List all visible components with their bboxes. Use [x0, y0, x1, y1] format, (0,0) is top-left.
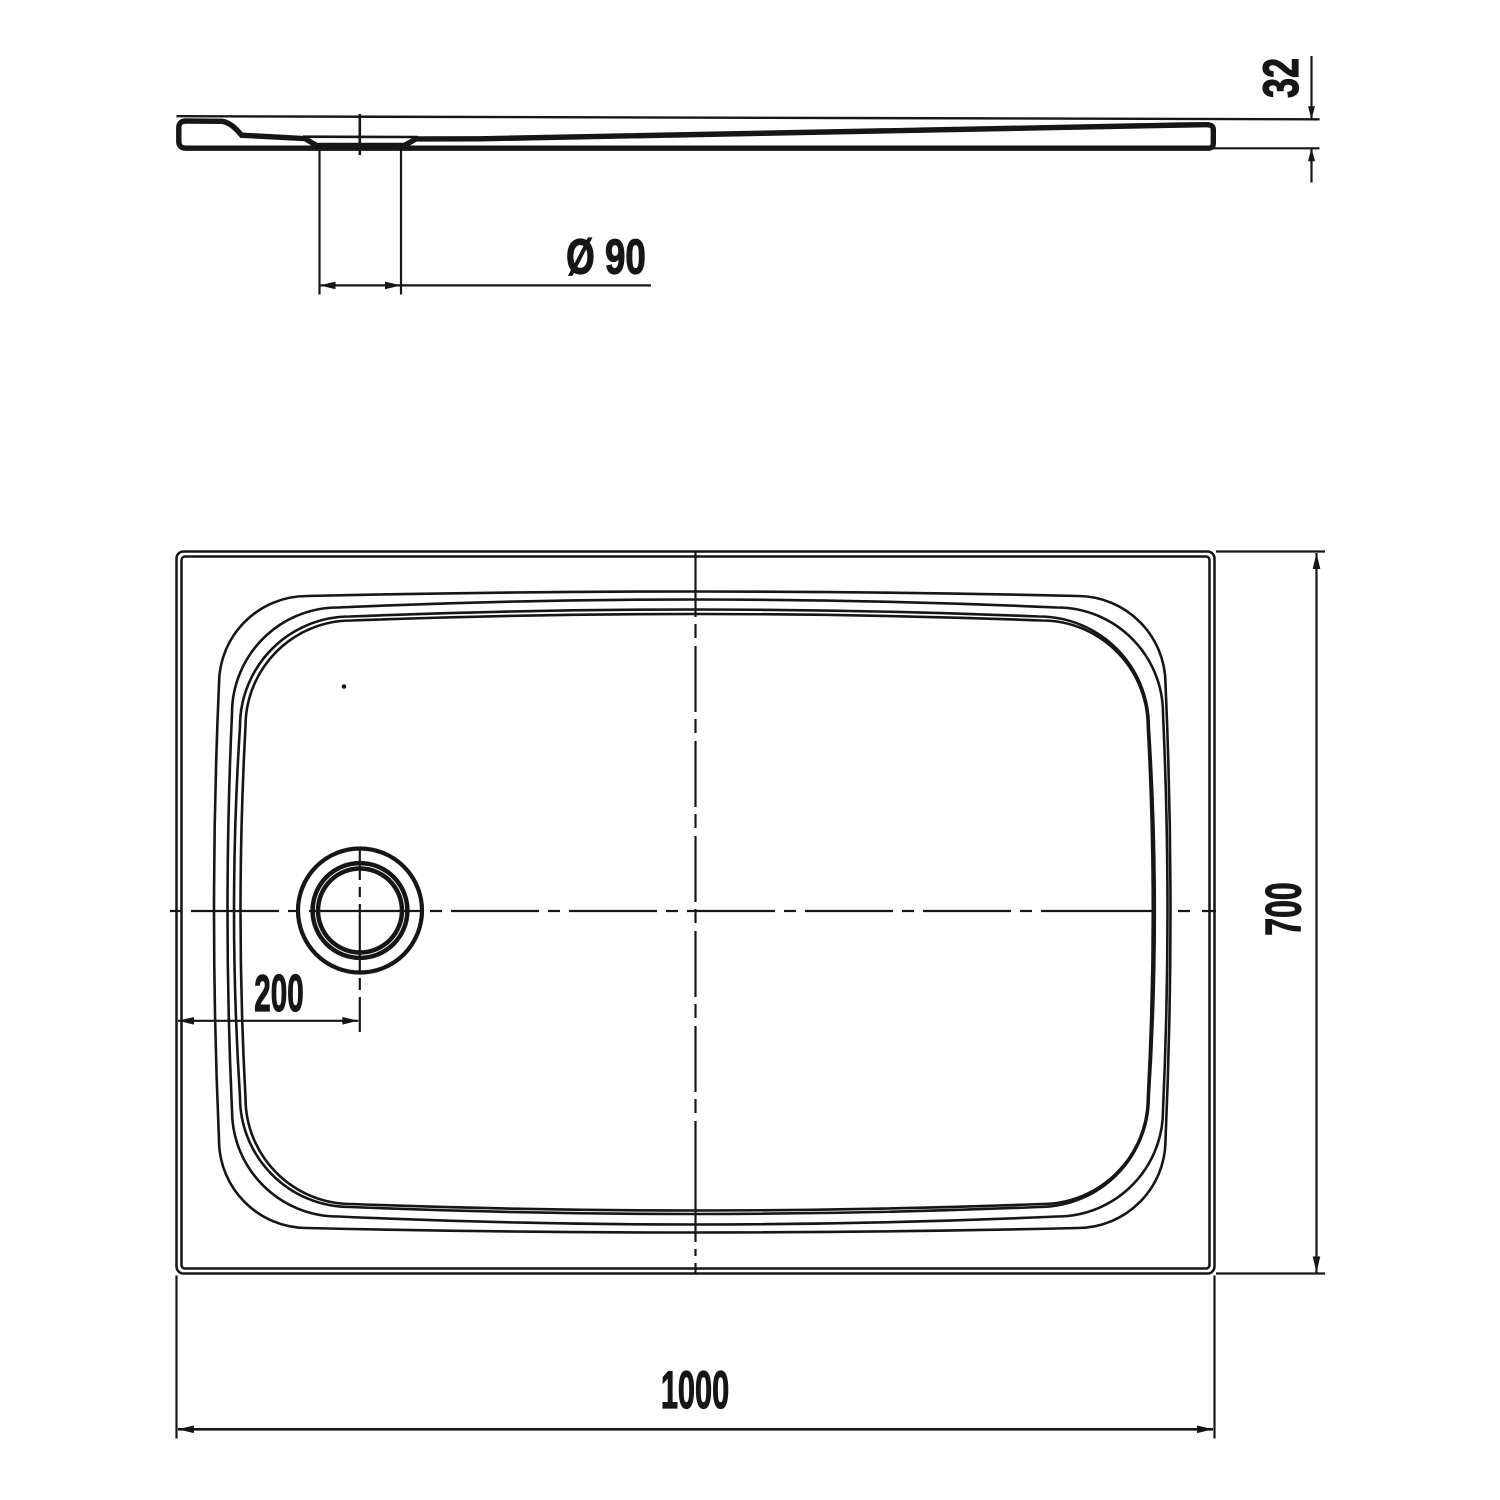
- svg-text:200: 200: [254, 964, 303, 1022]
- svg-text:1000: 1000: [661, 1362, 729, 1421]
- svg-text:32: 32: [1254, 58, 1309, 98]
- svg-text:700: 700: [1255, 882, 1311, 935]
- svg-text:Ø 90: Ø 90: [566, 231, 646, 285]
